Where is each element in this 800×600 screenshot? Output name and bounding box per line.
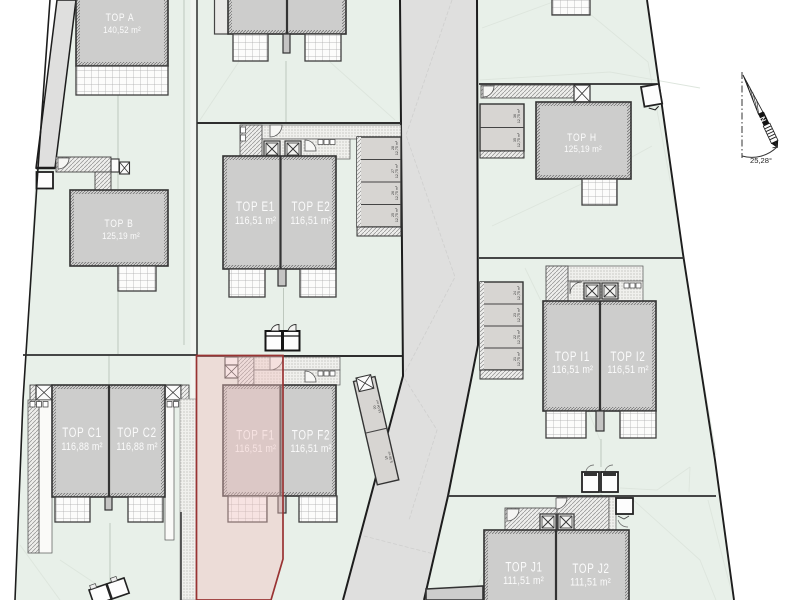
svg-text:TOP E1: TOP E1 bbox=[236, 198, 275, 214]
svg-text:12,75 m²: 12,75 m² bbox=[395, 207, 399, 222]
svg-text:TOP J1: TOP J1 bbox=[505, 559, 542, 575]
svg-text:12,75 m²: 12,75 m² bbox=[517, 329, 521, 344]
svg-text:116,51 m²: 116,51 m² bbox=[235, 215, 277, 227]
svg-text:116,88 m²: 116,88 m² bbox=[61, 441, 103, 453]
svg-text:12,75 m²: 12,75 m² bbox=[395, 185, 399, 200]
svg-text:TOP C2: TOP C2 bbox=[117, 424, 157, 440]
svg-text:TOP E2: TOP E2 bbox=[291, 198, 330, 214]
svg-text:TOP I1: TOP I1 bbox=[555, 348, 590, 364]
svg-text:TOP B: TOP B bbox=[104, 218, 133, 230]
svg-text:111,51 m²: 111,51 m² bbox=[570, 577, 611, 589]
svg-text:12,75 m²: 12,75 m² bbox=[517, 307, 521, 322]
svg-text:12,75 m²: 12,75 m² bbox=[395, 140, 399, 155]
svg-text:TOP A: TOP A bbox=[106, 12, 135, 24]
svg-text:140,52 m²: 140,52 m² bbox=[103, 24, 141, 35]
svg-text:12,75 m²: 12,75 m² bbox=[517, 132, 521, 147]
svg-text:12,75 m²: 12,75 m² bbox=[517, 351, 521, 366]
svg-text:12,75 m²: 12,75 m² bbox=[395, 163, 399, 178]
svg-text:116,51 m²: 116,51 m² bbox=[552, 364, 594, 376]
svg-text:125,19 m²: 125,19 m² bbox=[102, 230, 140, 241]
svg-text:116,88 m²: 116,88 m² bbox=[116, 441, 158, 453]
svg-text:12,75 m²: 12,75 m² bbox=[517, 285, 521, 300]
svg-text:TOP C1: TOP C1 bbox=[62, 424, 102, 440]
svg-text:111,51 m²: 111,51 m² bbox=[503, 575, 544, 587]
svg-text:116,51 m²: 116,51 m² bbox=[290, 443, 332, 455]
svg-text:TOP F2: TOP F2 bbox=[292, 427, 330, 443]
svg-text:25,28°: 25,28° bbox=[750, 156, 772, 165]
svg-text:125,19 m²: 125,19 m² bbox=[564, 143, 602, 154]
svg-text:TOP J2: TOP J2 bbox=[572, 560, 609, 576]
svg-text:116,51 m²: 116,51 m² bbox=[607, 364, 649, 376]
svg-text:TOP I2: TOP I2 bbox=[610, 348, 645, 364]
svg-text:116,51 m²: 116,51 m² bbox=[290, 215, 332, 227]
svg-text:12,75 m²: 12,75 m² bbox=[517, 108, 521, 123]
